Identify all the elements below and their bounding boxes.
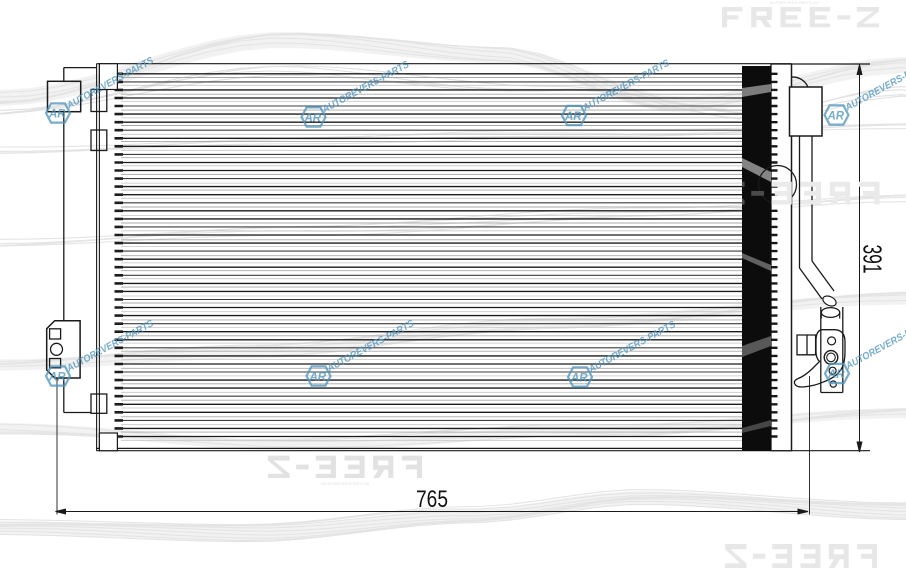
svg-text:AR: AR	[48, 371, 66, 383]
svg-text:AR: AR	[570, 372, 588, 384]
svg-text:391: 391	[858, 245, 886, 274]
svg-text:AR: AR	[564, 111, 582, 123]
svg-text:AR: AR	[304, 112, 322, 124]
svg-text:AR: AR	[827, 110, 845, 122]
svg-text:AR: AR	[827, 369, 845, 381]
svg-text:765: 765	[416, 486, 448, 513]
svg-text:AUTOREVERS-PARTS.RU: AUTOREVERS-PARTS.RU	[321, 481, 370, 486]
svg-text:AUTOREVERS-PARTS.RU: AUTOREVERS-PARTS.RU	[770, 0, 819, 5]
svg-text:AR: AR	[309, 371, 327, 383]
svg-text:AR: AR	[48, 108, 66, 120]
